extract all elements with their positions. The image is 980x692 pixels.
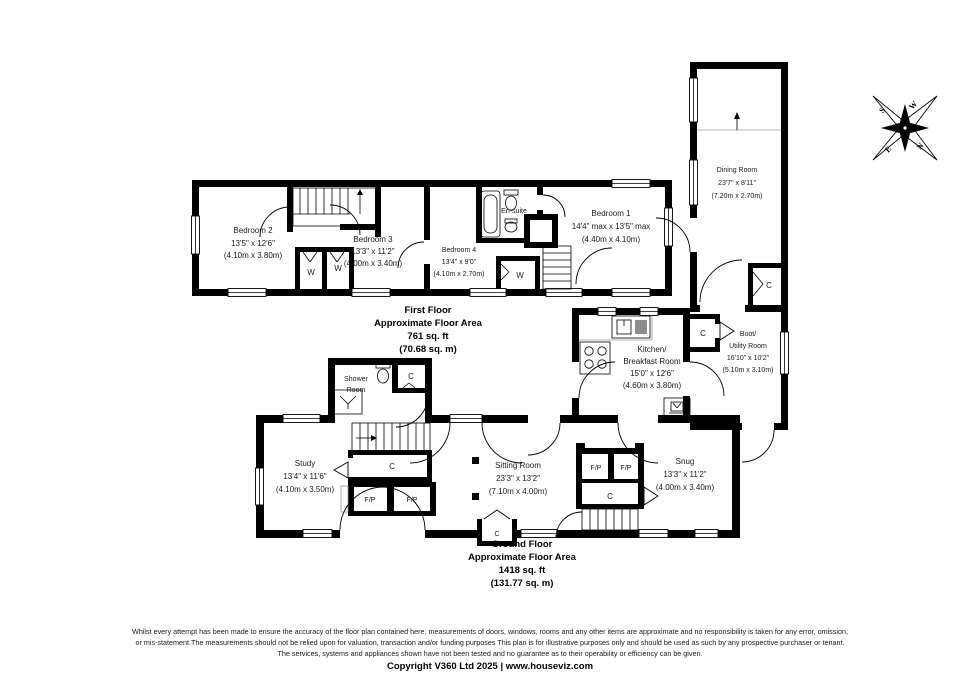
- room-dims: (4.10m x 2.70m): [434, 271, 485, 278]
- window: [690, 78, 698, 122]
- cupboard-door: [720, 322, 734, 340]
- room-dims: (5.10m x 3.10m): [723, 367, 774, 374]
- room-label-kitchen: Kitchen/: [638, 345, 668, 354]
- disclaimer-line-1: Whilst every attempt has been made to en…: [0, 627, 980, 636]
- cupboard-door: [334, 462, 348, 478]
- staircase: [352, 423, 430, 453]
- ceiling-break-line: [697, 112, 781, 130]
- room-label-ensuite: En-suite: [501, 208, 527, 215]
- window: [781, 332, 789, 374]
- room-label-sitting: Sitting Room: [495, 461, 541, 470]
- room-dims: 13'3" x 11'2": [351, 247, 394, 256]
- column-post: [472, 493, 479, 500]
- window: [598, 308, 616, 316]
- window: [695, 530, 718, 538]
- room-label-dining: Dining Room: [717, 167, 758, 174]
- sink-icon: [612, 316, 650, 338]
- snug-staircase: [582, 509, 638, 530]
- column-post: [472, 457, 479, 464]
- floor-area-ft: 1418 sq. ft: [499, 565, 546, 576]
- room-label-study: Study: [295, 459, 315, 468]
- window: [450, 415, 482, 423]
- floor-area-m: (70.68 sq. m): [399, 344, 457, 355]
- floor-subtitle: Approximate Floor Area: [468, 552, 577, 563]
- room-label-bedroom2: Bedroom 2: [233, 226, 273, 235]
- compass-east-label: E: [883, 144, 893, 154]
- ground-floor-caption: Ground Floor Approximate Floor Area 1418…: [468, 539, 577, 589]
- room-label-bedroom4: Bedroom 4: [442, 247, 476, 254]
- walls: [690, 62, 788, 312]
- dining-room-plan: Dining Room 23'7" x 8'11" (7.20m x 2.70m…: [656, 62, 788, 312]
- compass-rose-icon: S W E N: [873, 96, 937, 160]
- toilet-icon: [376, 363, 390, 383]
- room-label-kitchen2: Breakfast Room: [623, 357, 681, 366]
- window: [283, 415, 320, 423]
- room-dims: 23'7" x 8'11": [718, 180, 756, 187]
- fireplace-label: F/P: [591, 465, 602, 472]
- cupboard-label: C: [389, 462, 395, 471]
- window: [352, 289, 390, 297]
- room-label-bedroom3: Bedroom 3: [353, 235, 393, 244]
- compass-west-label: W: [907, 99, 919, 111]
- window: [228, 289, 266, 297]
- wardrobe-label: W: [334, 264, 342, 273]
- floor-title: Ground Floor: [492, 539, 553, 550]
- room-dims: 13'4" x 9'0": [442, 259, 477, 266]
- floor-area-m: (131.77 sq. m): [491, 578, 554, 589]
- window: [639, 530, 668, 538]
- cupboard-label: C: [607, 492, 613, 501]
- second-staircase: [543, 246, 571, 289]
- window: [303, 530, 332, 538]
- staircase: [293, 188, 378, 226]
- room-dims: 13'3" x 11'2": [663, 470, 706, 479]
- cupboard-label: C: [766, 281, 772, 290]
- window: [640, 308, 658, 316]
- window: [470, 289, 506, 297]
- fireplace-label: F/P: [621, 465, 632, 472]
- kitchen-plan: Kitchen/ Breakfast Room 15'0" x 12'6" (4…: [572, 308, 690, 464]
- disclaimer-line-3: The services, systems and appliances sho…: [0, 649, 980, 658]
- bath-icon: [481, 191, 500, 237]
- window: [612, 289, 650, 297]
- room-label-shower: Shower: [344, 376, 368, 383]
- window: [612, 180, 650, 188]
- window: [521, 530, 557, 538]
- room-dims: 16'10" x 10'2": [727, 355, 770, 362]
- window: [690, 160, 698, 205]
- fireplace-label: F/P: [407, 497, 418, 504]
- room-label-boot: Boot/: [740, 331, 756, 338]
- window: [256, 468, 264, 505]
- room-dims: 15'0" x 12'6": [630, 369, 674, 378]
- wardrobe-label: W: [307, 268, 315, 277]
- room-dims: 13'5" x 12'6": [231, 239, 275, 248]
- window: [192, 216, 200, 254]
- disclaimer-line-2: or mis-statement.The measurements should…: [0, 638, 980, 647]
- room-dims: 13'4" x 11'6": [283, 472, 326, 481]
- hob-icon: [580, 342, 610, 374]
- room-label-bedroom1: Bedroom 1: [591, 209, 631, 218]
- first-floor-plan: Bedroom 2 13'5" x 12'6" (4.10m x 3.80m) …: [192, 180, 673, 356]
- ground-floor-plan: Shower Room C: [256, 358, 741, 589]
- copyright-line: Copyright V360 Ltd 2025 | www.houseviz.c…: [0, 661, 980, 672]
- cupboard-door: [753, 272, 763, 296]
- room-dims: (4.00m x 3.40m): [656, 483, 715, 492]
- basin-icon: [505, 219, 517, 232]
- cupboard-label: C: [494, 531, 499, 538]
- room-dims: (7.20m x 2.70m): [712, 193, 763, 200]
- toilet-icon: [504, 190, 518, 210]
- room-dims: 14'4" max x 13'5" max: [572, 222, 651, 231]
- floor-title: First Floor: [405, 305, 452, 316]
- floor-subtitle: Approximate Floor Area: [374, 318, 483, 329]
- room-dims: (7.10m x 4.00m): [489, 487, 548, 496]
- room-dims: (4.10m x 3.50m): [276, 485, 335, 494]
- room-dims: (4.10m x 3.80m): [224, 251, 283, 260]
- fireplace-label: F/P: [365, 497, 376, 504]
- room-label-shower2: Room: [347, 387, 366, 394]
- room-label-boot2: Utility Room: [729, 343, 767, 350]
- first-floor-caption: First Floor Approximate Floor Area 761 s…: [374, 305, 483, 355]
- window: [665, 208, 673, 246]
- window: [546, 289, 582, 297]
- cupboard-label: C: [408, 372, 414, 381]
- floor-plan-drawing: Bedroom 2 13'5" x 12'6" (4.10m x 3.80m) …: [0, 0, 980, 692]
- room-label-snug: Snug: [676, 457, 695, 466]
- floor-plan-page: Bedroom 2 13'5" x 12'6" (4.10m x 3.80m) …: [0, 0, 980, 692]
- cupboard-label: C: [700, 329, 706, 338]
- hearth: [341, 486, 348, 512]
- room-dims: 23'3" x 13'2": [496, 474, 540, 483]
- room-dims: (4.40m x 4.10m): [582, 235, 641, 244]
- floor-area-ft: 761 sq. ft: [407, 331, 449, 342]
- wardrobe-label: W: [516, 271, 524, 280]
- room-dims: (4.00m x 3.40m): [344, 259, 403, 268]
- room-dims: (4.60m x 3.80m): [623, 381, 682, 390]
